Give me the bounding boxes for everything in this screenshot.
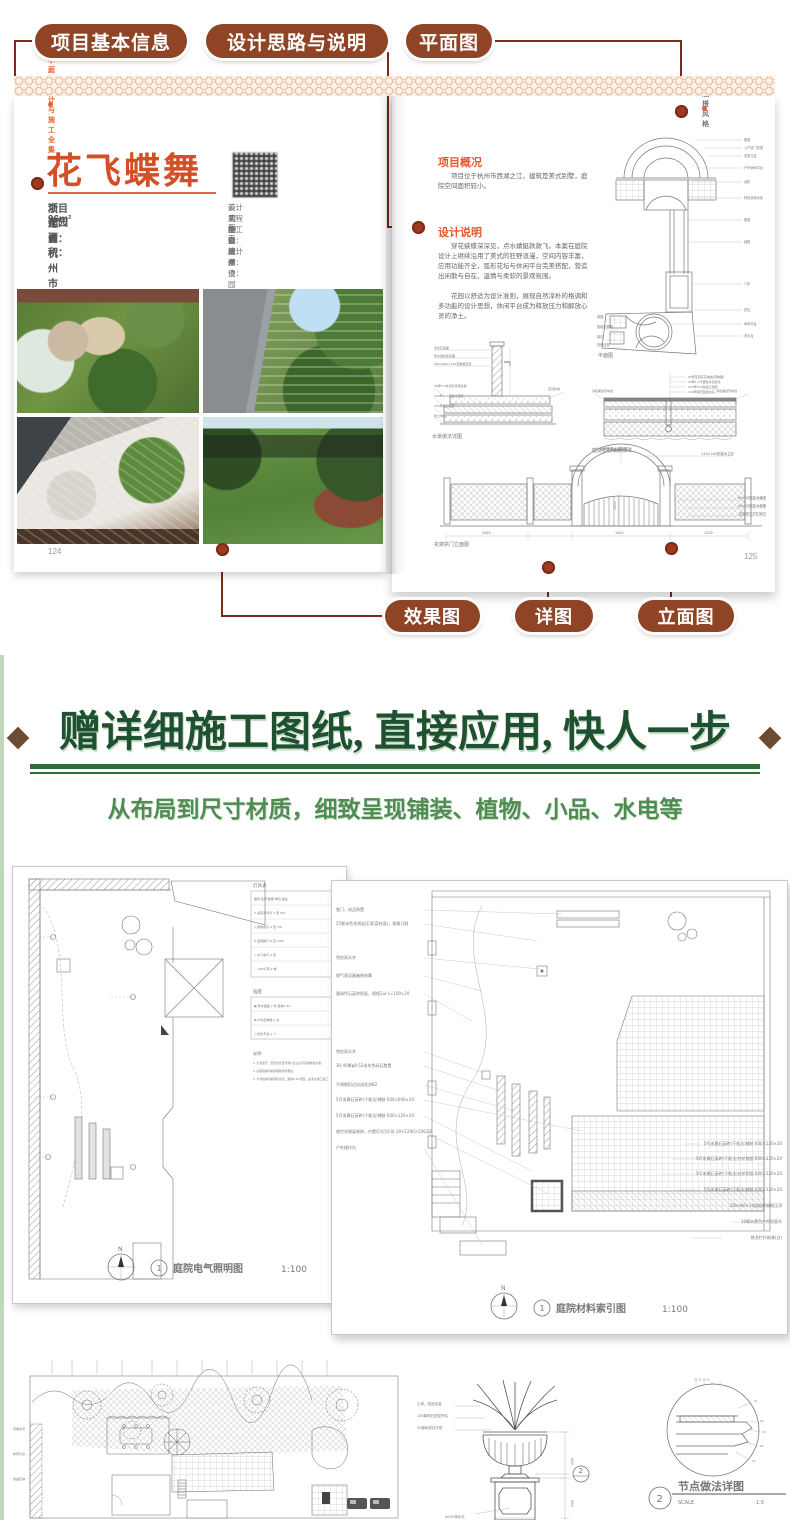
material-caption-block: N 1 庭院材料索引图 1:100 (491, 1285, 688, 1319)
connector-dot (665, 542, 678, 555)
water-geometry (440, 342, 556, 424)
planting-label: 成品花钵 (13, 1476, 25, 1481)
paving-label: 50厚芝麻灰花岗岩(荔枝面) (688, 374, 724, 379)
page-number-right: 125 (744, 552, 757, 561)
elevation-label: 40×30防腐木格栅 (738, 503, 767, 508)
plan-label: 围墙 (744, 137, 751, 142)
legend-row: ⊠ 户外配电箱 1 台 (254, 1017, 279, 1022)
urn-label: 30厚砂浆找平层 (417, 1425, 443, 1430)
rendering-photo-patio (17, 417, 199, 544)
urn-dim: 400 (570, 1458, 574, 1465)
rendering-photo-lawn (203, 417, 383, 544)
paving-label: 深色美缝剂勾缝 (716, 388, 737, 393)
promo-subtitle: 从布局到尺寸材质，细致呈现铺装、植物、小品、水电等 (0, 790, 790, 824)
plan-label: 绿篱 (744, 239, 750, 244)
callout-details: 详图 (515, 600, 593, 632)
annotation: 5号米黄石英砖(干粘法)铺装 600×600×20 (336, 1096, 414, 1102)
connector-dot (216, 543, 229, 556)
plan-label: 汀步 (744, 281, 750, 286)
planting-labels: 景墙水景 休闲平台 成品花钵 (13, 1426, 25, 1481)
legend-row: ▣ 防水插座 2 处 距地0.3m (254, 1003, 291, 1008)
book-right-page: 混搭风格 项目概况 项目位于杭州市西湖之江，建筑是美式别墅，庭院空间面积较小。 … (392, 96, 775, 592)
plan-label: 菜园 (597, 314, 603, 319)
node-dim: 10 (752, 1459, 756, 1463)
elevation-label: 成品防腐木花架拱门 (600, 446, 631, 451)
material-plan-drawing: 铁门，成品购置 25厚米色花岗岩压顶(荔枝面)，规格订制 免检雨水井 燃气表设备… (332, 881, 787, 1334)
fan-feature (164, 1429, 190, 1455)
annotation: 220×60×10烧结砖侧砌压顶 (729, 1202, 782, 1208)
urn-labels: 土球，成品安装 100厚碎石垫层夯实 30厚砂浆找平层 400 500 Φ100… (417, 1401, 574, 1519)
gate-elevation: 成品防腐木花架拱门 240×240防腐木立柱 60×40防腐木横梁 40×30防… (432, 442, 770, 548)
paving-detail: 50厚芝麻灰花岗岩(荔枝面) 30厚1:3干硬性水泥砂浆 100厚C15混凝土垫… (590, 366, 752, 454)
page-number-left: 124 (48, 547, 61, 556)
node-caption-block: 2 节点做法详图 SCALE 1:5 (649, 1479, 786, 1509)
plan-label: 休闲平台 (744, 321, 757, 326)
drawing-bubble-number: 1 (157, 1264, 162, 1273)
rendering-photo-sidepath (203, 289, 383, 413)
north-letter: N (118, 1246, 123, 1253)
annotation: 5号米黄石英砖(干粘法)台阶踏面 600×120×20 (696, 1155, 782, 1161)
node-dim: 20 (760, 1444, 764, 1448)
design-para2: 花园以舒适为设计准则，展现自然淳朴的格调和多功能的设计思想，休闲平台成为释放压力… (438, 292, 590, 322)
paving-label: 150厚碎石垫层夯实 (688, 389, 715, 394)
node-dim: 20 (760, 1419, 764, 1423)
overview-heading: 项目概况 (438, 154, 482, 170)
water-label: 200×600×120花岗岩压顶 (434, 361, 471, 366)
drawing-bubble-number: 2 (657, 1494, 663, 1505)
plan-label: 户外休闲平台 (744, 165, 763, 170)
annotation: 铁艺栏杆刷漆(白) (751, 1234, 783, 1240)
plan-label: 花坛 (744, 307, 751, 312)
note-line: 1. 灯具型号、安装方式及外观以业主认可实物样品为准。 (253, 1061, 324, 1065)
paving-label: 100厚C15混凝土垫层 (688, 384, 718, 389)
divider-rule-thin (30, 772, 760, 774)
qr-code (232, 152, 278, 198)
electric-caption: 庭院电气照明图 (173, 1262, 243, 1275)
connector-dot (31, 177, 44, 190)
annotation: 不锈钢扣边自流花池B2 (336, 1081, 378, 1087)
legend2-title: 插座 (253, 988, 262, 995)
callout-elevation: 立面图 (638, 600, 734, 632)
plan-label: 洗手台 (744, 333, 754, 338)
overview-text: 项目位于杭州市西湖之江，建筑是美式别墅，庭院空间面积较小。 (438, 172, 588, 192)
area-value: 96m² (48, 214, 71, 225)
node-caption: 节点做法详图 (678, 1479, 744, 1493)
annotation: 5号米黄石英砖(干粘法)铺装 600×120×20 (336, 1112, 414, 1118)
urn-geometry (473, 1380, 557, 1520)
paving-label: 深色美缝剂勾缝 (592, 388, 613, 393)
left-page-header-text: 小庭院设计与施工全集 (48, 55, 55, 155)
plan-label: 围墙 (744, 217, 751, 222)
annotation: 30-40厚φ9-52米灰色砾石散置 (336, 1062, 391, 1068)
left-page-header: 小庭院设计与施工全集 (48, 102, 53, 107)
electric-caption-block: N 1 庭院电气照明图 1:100 (108, 1246, 307, 1280)
annotation: 10厚米黄色户外防腐木 (741, 1218, 782, 1224)
node-scale-label: SCALE (678, 1500, 694, 1506)
water-label: 30厚1:3水泥砂浆结合层 (434, 383, 467, 388)
paving-geometry (604, 398, 736, 440)
elevation-dim: 1500 (613, 501, 617, 510)
notes-title: 说明: (253, 1050, 262, 1056)
title-underline (48, 192, 216, 194)
water-label: 150厚碎石垫层 (434, 403, 455, 408)
page-root: 项目基本信息 设计思路与说明 平面图 效果图 详图 立面图 小庭院设计与施工全集… (0, 0, 790, 1520)
callout-design-notes: 设计思路与说明 (206, 24, 388, 58)
design-heading: 设计说明 (438, 224, 482, 240)
paving-label: 30厚1:3干硬性水泥砂浆 (688, 379, 721, 384)
note-line: 2. 庭院线路均采用埋地穿管敷设。 (253, 1069, 296, 1073)
annotation: 5号米黄石英砖(干粘法)台阶侧面 600×120×20 (696, 1170, 782, 1176)
urn-dims (455, 1406, 569, 1520)
connector-line (492, 40, 682, 42)
water-label: 100厚C15混凝土垫层 (434, 393, 464, 398)
electric-legend: 灯具表 图例 名称 数量 单位 备注 ⊙ 庭院草坪灯 7 套 5W ▷ 插地射灯… (251, 882, 341, 1081)
material-geometry (428, 891, 770, 1255)
connector-line (221, 615, 387, 617)
connector-dot (542, 561, 555, 574)
elevation-dim: 1400 (615, 531, 624, 535)
water-label: 压顶找坡 (548, 386, 560, 391)
plan-label: 入户拱门花架 (744, 145, 764, 150)
drawing-bubble-number: 1 (540, 1304, 545, 1313)
elevation-geometry (440, 444, 762, 526)
annotation: 5号米黄石英砖(干粘法)铺装 600×120×20 (704, 1186, 782, 1192)
paving-labels: 50厚芝麻灰花岗岩(荔枝面) 30厚1:3干硬性水泥砂浆 100厚C15混凝土垫… (592, 374, 737, 394)
plan-label: 台阶 (744, 179, 751, 184)
book-pattern-band (14, 76, 775, 96)
node-dim: 20 15 10 15 (694, 1378, 710, 1382)
node-scale-value: 1:5 (756, 1500, 764, 1506)
right-page-header: 混搭风格 (702, 106, 707, 111)
annotation: 免检雨水井 (336, 1048, 356, 1054)
project-title: 花飞蝶舞 (46, 142, 202, 194)
electric-scale: 1:100 (281, 1265, 307, 1275)
legend-row: ♀ 庭院壁灯 8 套 10W (254, 938, 284, 943)
annotation: 铁门，成品购置 (336, 906, 364, 912)
book-gutter-shadow (378, 96, 406, 574)
water-label: 素土夯实 (434, 413, 446, 418)
note-line: 3. 户外插座均采用防水型，距地0.3m安装，由专业电工施工。 (253, 1077, 331, 1081)
water-label: 防水层拉毛处理 (434, 353, 455, 358)
urn-dim: 500 (570, 1500, 574, 1507)
connector-dot (412, 221, 425, 234)
legend-headers: 图例 名称 数量 单位 备注 (254, 896, 288, 901)
garden-plan-drawing: 围墙 入户拱门花架 花架立柱 户外休闲平台 台阶 特色景墙水景 围墙 绿篱 汀步… (596, 124, 772, 358)
node-detail-drawing: 20 15 10 15 10 20 15 20 10 2 节点做法详图 SCAL… (638, 1378, 788, 1520)
water-feature-detail: 文化石贴面 防水层拉毛处理 200×600×120花岗岩压顶 30厚1:3水泥砂… (430, 340, 568, 440)
elevation-dim: 2463 (482, 531, 491, 535)
legend-row: ⊙ 庭院草坪灯 7 套 5W (254, 910, 285, 915)
urn-planter-detail: 土球，成品安装 100厚碎石垫层夯实 30厚砂浆找平层 400 500 Φ100… (415, 1378, 620, 1520)
annotation: 镂空花钢架装饰，内置灯光为C形 20×1200×500.B2 (336, 1128, 433, 1134)
annotation: 墨绿色石英砖贴面，规格2㎡ L=100×20 (336, 990, 410, 996)
plan-label: 特色坐凳 (597, 342, 611, 347)
design-para1: 穿花蛱蝶深深见，点水蜻蜓款款飞。本案在庭院设计上继续沿用了美式的狂野浪漫，空间内… (438, 242, 590, 282)
electric-plan-drawing: 灯具表 图例 名称 数量 单位 备注 ⊙ 庭院草坪灯 7 套 5W ▷ 插地射灯… (13, 867, 346, 1303)
planting-label: 景墙水景 (13, 1426, 25, 1431)
annotation: 5号米黄石英砖(干粘法)铺装 600×120×20 (704, 1140, 782, 1146)
elevation-caption: 花架拱门立面图 (434, 541, 469, 548)
node-dim: 10 (754, 1399, 758, 1403)
sheet-electric-plan: 灯具表 图例 名称 数量 单位 备注 ⊙ 庭院草坪灯 7 套 5W ▷ 插地射灯… (12, 866, 347, 1304)
legend-row: ◻ 防水开关 1 个 (254, 1031, 276, 1036)
annotation: 免检雨水井 (336, 954, 356, 960)
callout-renderings: 效果图 (385, 600, 480, 632)
water-caption: 水景做法详图 (432, 433, 462, 440)
planting-plan-drawing: 景墙水景 休闲平台 成品花钵 (12, 1360, 412, 1520)
elevation-label: 240×240防腐木立柱 (701, 451, 734, 456)
urn-detail-bubble: 2 (573, 1466, 589, 1482)
legend-row: ▷ 插地射灯 4 套 7W (254, 924, 282, 929)
urn-label: 土球，成品安装 (417, 1401, 442, 1406)
plan-caption: 平面图 (598, 353, 613, 358)
electric-geometry (29, 879, 265, 1279)
annotation: 25厚米色花岗岩压顶(荔枝面)，规格订制 (336, 920, 408, 926)
planting-geometry (30, 1360, 398, 1518)
planting-label: 休闲平台 (13, 1451, 25, 1456)
callout-project-info: 项目基本信息 (35, 24, 187, 58)
elevation-dim: 1250 (704, 531, 713, 535)
promo-headline: 赠详细施工图纸, 直接应用, 快人一步 (0, 698, 790, 759)
node-geometry (667, 1381, 760, 1476)
callout-plan-view: 平面图 (406, 24, 492, 58)
paving-leaders (594, 372, 748, 399)
annotation: 燃气表设备箱装饰罩 (336, 972, 372, 978)
water-label: 文化石贴面 (434, 345, 449, 350)
plan-label: 花架立柱 (744, 153, 758, 158)
plan-label: 置石 (597, 334, 603, 339)
rendering-photo-aerial (17, 289, 199, 413)
elevation-label: 60×40防腐木横梁 (738, 495, 767, 500)
divider-rule-thick (30, 764, 760, 769)
elevation-label: 成品铁艺护栏刷白 (739, 511, 766, 516)
drawing-bubble-number: 2 (579, 1467, 583, 1475)
plan-label: 特色景墙水景 (744, 195, 763, 200)
material-caption: 庭院材料索引图 (556, 1302, 626, 1315)
urn-label: 100厚碎石垫层夯实 (417, 1413, 449, 1418)
left-edge-strip (0, 655, 4, 1520)
plan-label: 智能信报箱 (597, 324, 614, 329)
annotation: 户外操作台 (336, 1144, 356, 1150)
material-annotations-left: 铁门，成品购置 25厚米色花岗岩压顶(荔枝面)，规格订制 免检雨水井 燃气表设备… (336, 906, 433, 1150)
plan-geometry (602, 138, 716, 354)
legend-row: ◇ 水下射灯 4 套 (254, 952, 276, 957)
north-letter: N (501, 1285, 506, 1292)
node-dim: 15 (762, 1430, 766, 1434)
material-scale: 1:100 (662, 1305, 688, 1315)
legend-title: 灯具表 (253, 882, 267, 889)
urn-drain-label: Φ100排水孔 (445, 1514, 465, 1519)
book-left-page: 小庭院设计与施工全集 花飞蝶舞 项目地点：浙江省杭州市 花园面积：96m² 设计… (14, 96, 386, 572)
sheet-material-plan: 铁门，成品购置 25厚米色花岗岩压顶(荔枝面)，规格订制 免检雨水井 燃气表设备… (331, 880, 788, 1335)
connector-dot (675, 105, 688, 118)
legend-row: — LED灯带 2 卷 (254, 966, 277, 971)
